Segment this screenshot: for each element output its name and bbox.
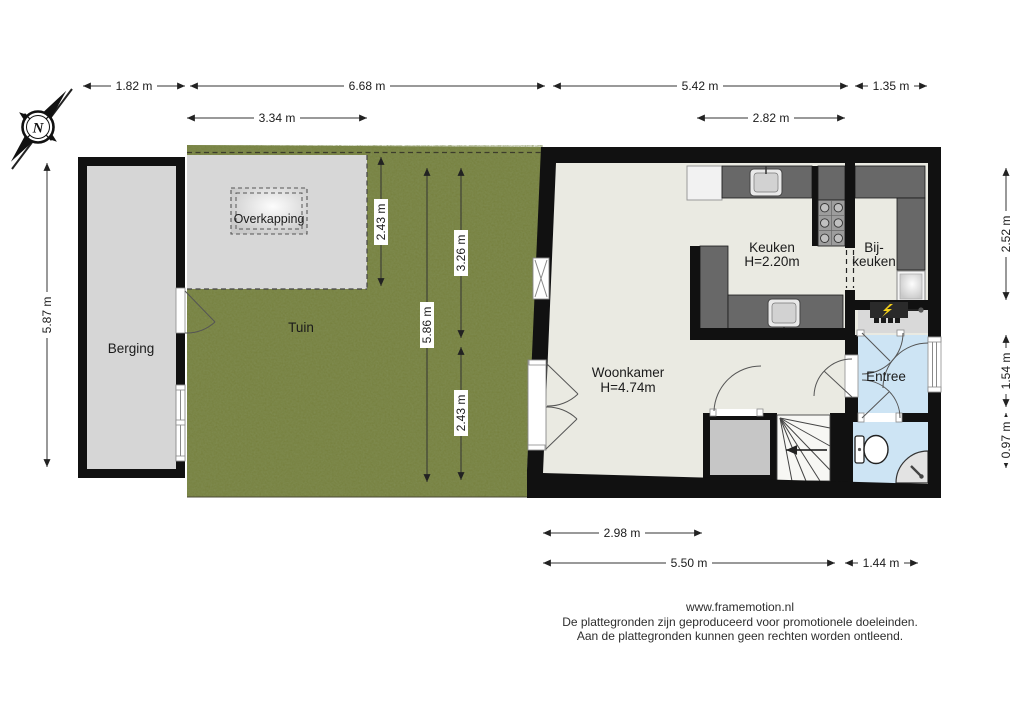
footer: www.framemotion.nl De plattegronden zijn… <box>562 600 918 643</box>
toilet-icon <box>855 436 888 464</box>
staircase <box>777 415 830 481</box>
garden: Overkapping Tuin <box>187 145 543 497</box>
dim-top-3: 5.42 m <box>553 79 848 93</box>
bijkeuken-label-2: keuken <box>852 254 896 269</box>
washer-icon <box>897 271 925 302</box>
footer-disclaimer-1: De plattegronden zijn geproduceerd voor … <box>562 615 918 629</box>
dim-top-2: 6.68 m <box>190 79 545 93</box>
kitchen-counter-stove-top <box>818 166 845 200</box>
kitchen-island-counter <box>700 246 728 333</box>
dim-bottom-1: 2.98 m <box>543 526 702 540</box>
closet <box>703 413 777 481</box>
dim-row2-2: 2.82 m <box>697 111 845 125</box>
svg-text:3.26 m: 3.26 m <box>454 235 468 272</box>
dim-right-2: 1.54 m <box>999 335 1013 407</box>
fridge <box>687 166 722 200</box>
dim-top-4: 1.35 m <box>855 79 927 93</box>
footer-disclaimer-2: Aan de plattegronden kunnen geen rechten… <box>577 629 903 643</box>
svg-text:0.97 m: 0.97 m <box>999 422 1013 459</box>
svg-text:1.44 m: 1.44 m <box>863 556 900 570</box>
berging-floor <box>87 166 176 469</box>
keuken-bottom-wall <box>690 328 855 340</box>
dim-right-3: 0.97 m <box>999 413 1013 468</box>
svg-text:2.43 m: 2.43 m <box>374 204 388 241</box>
compass-rose: N <box>11 89 72 169</box>
entree-label: Entree <box>866 369 906 384</box>
overkapping-label: Overkapping <box>234 212 305 226</box>
berging-window <box>176 385 185 461</box>
tuin-label: Tuin <box>288 320 314 335</box>
berging-door <box>176 288 185 333</box>
svg-text:5.86 m: 5.86 m <box>420 307 434 344</box>
keuken-label: Keuken <box>749 240 795 255</box>
stair-toilet-wall <box>830 413 853 483</box>
kitchen-sink-icon <box>750 166 782 196</box>
svg-text:2.52 m: 2.52 m <box>999 216 1013 253</box>
svg-text:2.43 m: 2.43 m <box>454 395 468 432</box>
kitchen-wall-strip <box>812 166 818 246</box>
dim-row2-1: 3.34 m <box>187 111 367 125</box>
svg-text:2.82 m: 2.82 m <box>753 111 790 125</box>
dim-top-1: 1.82 m <box>83 79 185 93</box>
dim-left-1: 5.87 m <box>40 163 54 467</box>
svg-text:5.87 m: 5.87 m <box>40 297 54 334</box>
bijkeuken-counter-top <box>855 166 925 198</box>
svg-text:1.35 m: 1.35 m <box>873 79 910 93</box>
svg-text:5.42 m: 5.42 m <box>682 79 719 93</box>
svg-text:1.54 m: 1.54 m <box>999 353 1013 390</box>
dim-right-1: 2.52 m <box>999 168 1013 300</box>
floor-plan: Overkapping Tuin Berging <box>0 0 1024 724</box>
svg-text:2.98 m: 2.98 m <box>604 526 641 540</box>
bijkeuken-counter-right <box>897 198 925 270</box>
svg-text:6.68 m: 6.68 m <box>349 79 386 93</box>
house: Woonkamer H=4.74m Keuken H=2.20m Bij- ke… <box>527 147 941 498</box>
bijkeuken-label-1: Bij- <box>864 240 884 255</box>
footer-website: www.framemotion.nl <box>685 600 794 614</box>
island-wall <box>690 246 700 340</box>
north-label: N <box>32 121 45 137</box>
svg-text:1.82 m: 1.82 m <box>116 79 153 93</box>
svg-text:5.50 m: 5.50 m <box>671 556 708 570</box>
overkapping-area <box>231 188 307 234</box>
floor-plan-page: Overkapping Tuin Berging <box>0 0 1024 724</box>
berging-label: Berging <box>108 341 155 356</box>
keuken-bijkeuken-wall-top <box>845 163 855 248</box>
svg-text:3.34 m: 3.34 m <box>259 111 296 125</box>
woonkamer-label: Woonkamer <box>592 365 665 380</box>
woonkamer-height: H=4.74m <box>600 380 655 395</box>
dim-bottom-3: 1.44 m <box>845 556 918 570</box>
keuken-bijkeuken-wall-bottom <box>845 290 855 340</box>
dim-bottom-2: 5.50 m <box>543 556 835 570</box>
woonkamer-window <box>533 258 549 299</box>
keuken-height: H=2.20m <box>744 254 799 269</box>
stove-icon <box>818 200 845 246</box>
